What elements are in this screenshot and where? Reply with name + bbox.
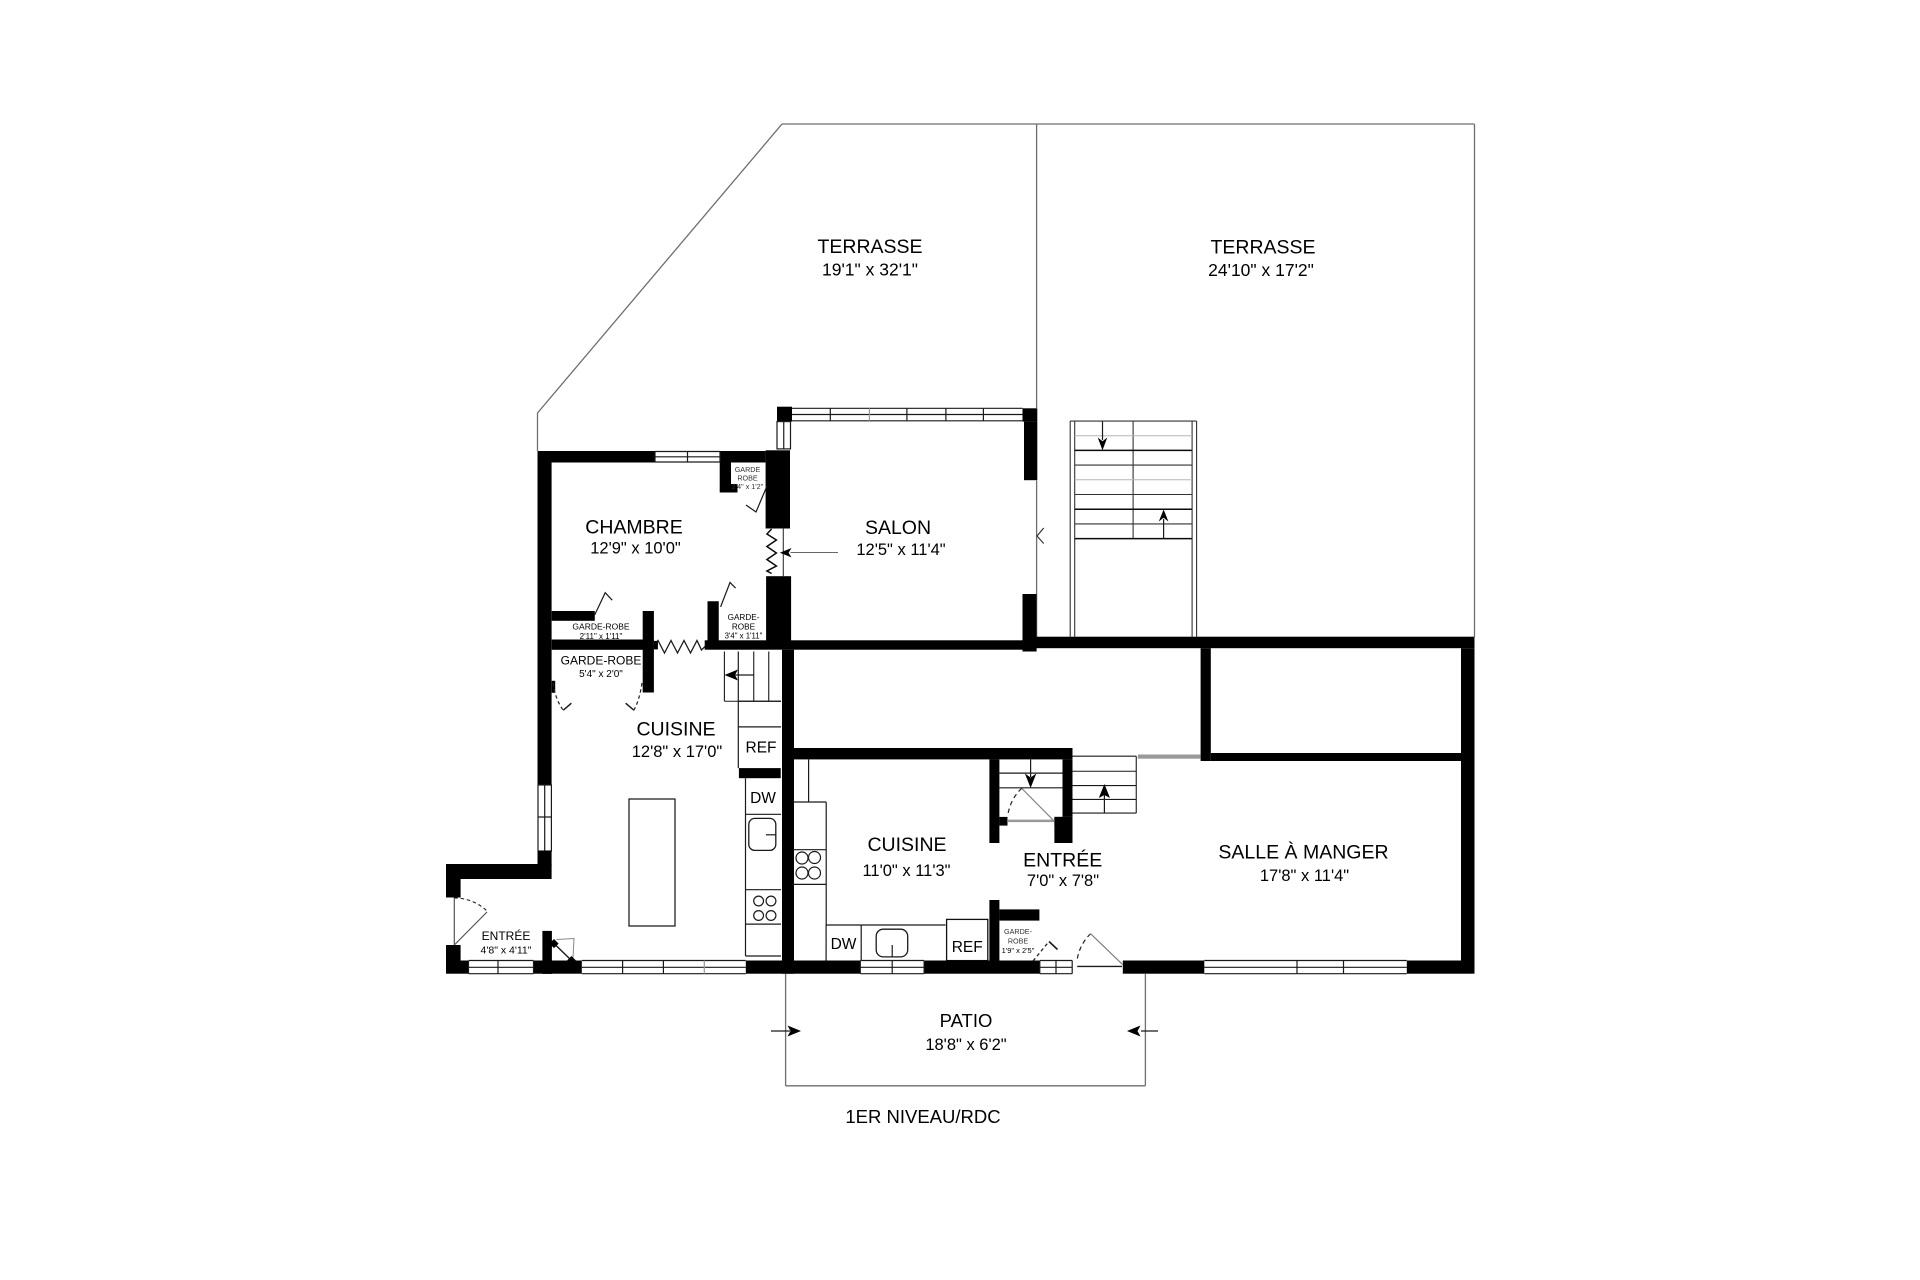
svg-text:REF: REF [746, 740, 777, 757]
svg-text:19'1" x 32'1": 19'1" x 32'1" [822, 260, 918, 280]
svg-text:DW: DW [831, 936, 857, 953]
svg-text:GARDE-ROBE: GARDE-ROBE [572, 622, 629, 632]
svg-text:24'10" x 17'2": 24'10" x 17'2" [1208, 260, 1314, 280]
svg-text:17'8" x 11'4": 17'8" x 11'4" [1260, 867, 1349, 885]
svg-text:CHAMBRE: CHAMBRE [585, 517, 683, 539]
svg-text:1ER NIVEAU/RDC: 1ER NIVEAU/RDC [845, 1106, 1000, 1127]
svg-text:3'4" x 1'11": 3'4" x 1'11" [725, 632, 763, 641]
svg-text:4'8" x 4'11": 4'8" x 4'11" [481, 945, 532, 957]
svg-text:SALLE À MANGER: SALLE À MANGER [1218, 841, 1388, 864]
svg-text:11'0" x 11'3": 11'0" x 11'3" [862, 862, 950, 880]
svg-text:ROBE: ROBE [1008, 937, 1029, 946]
svg-text:2'4" x 1'2": 2'4" x 1'2" [732, 482, 764, 491]
svg-text:TERRASSE: TERRASSE [817, 236, 922, 258]
svg-text:ROBE: ROBE [732, 623, 756, 632]
svg-text:GARDE-: GARDE- [728, 613, 760, 622]
svg-text:REF: REF [952, 939, 983, 956]
svg-text:CUISINE: CUISINE [867, 834, 946, 856]
svg-text:GARDE-: GARDE- [1004, 927, 1033, 936]
svg-text:12'5" x 11'4": 12'5" x 11'4" [856, 541, 945, 559]
svg-text:12'8" x 17'0": 12'8" x 17'0" [632, 743, 723, 761]
svg-text:DW: DW [750, 790, 776, 807]
svg-text:PATIO: PATIO [940, 1010, 993, 1031]
svg-text:5'4" x 2'0": 5'4" x 2'0" [579, 669, 623, 680]
svg-text:18'8" x 6'2": 18'8" x 6'2" [925, 1036, 1006, 1054]
svg-text:CUISINE: CUISINE [636, 719, 715, 741]
svg-text:GARDE-ROBE: GARDE-ROBE [561, 654, 642, 668]
svg-text:TERRASSE: TERRASSE [1210, 237, 1315, 259]
svg-text:ENTRÉE: ENTRÉE [482, 928, 531, 943]
svg-text:ENTRÉE: ENTRÉE [1023, 849, 1102, 872]
svg-text:7'0" x 7'8": 7'0" x 7'8" [1027, 872, 1099, 890]
svg-text:1'9" x 2'5": 1'9" x 2'5" [1002, 946, 1035, 955]
svg-text:12'9" x 10'0": 12'9" x 10'0" [590, 540, 681, 558]
svg-text:SALON: SALON [865, 517, 931, 539]
svg-text:2'11" x 1'11": 2'11" x 1'11" [580, 632, 623, 641]
